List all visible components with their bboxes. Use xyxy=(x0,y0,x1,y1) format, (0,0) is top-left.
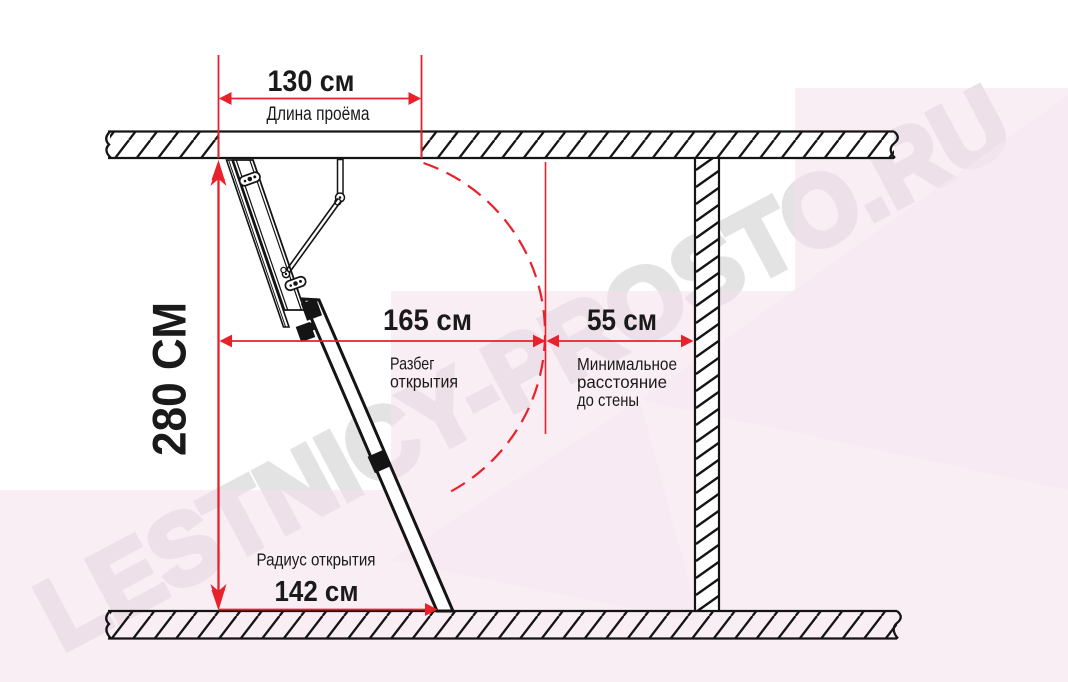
svg-text:130 см: 130 см xyxy=(268,65,355,98)
svg-text:Разбег: Разбег xyxy=(390,354,435,374)
svg-text:Радиус открытия: Радиус открытия xyxy=(257,550,376,570)
svg-text:165 см: 165 см xyxy=(383,304,472,337)
svg-text:открытия: открытия xyxy=(390,372,458,392)
svg-text:Длина проёма: Длина проёма xyxy=(267,104,370,125)
svg-text:расстояние: расстояние xyxy=(577,372,667,392)
svg-text:142 см: 142 см xyxy=(275,576,359,608)
svg-text:280 СМ: 280 СМ xyxy=(143,302,196,456)
svg-text:55 см: 55 см xyxy=(587,304,657,337)
svg-text:Минимальное: Минимальное xyxy=(577,354,677,374)
svg-text:до стены: до стены xyxy=(577,390,639,410)
